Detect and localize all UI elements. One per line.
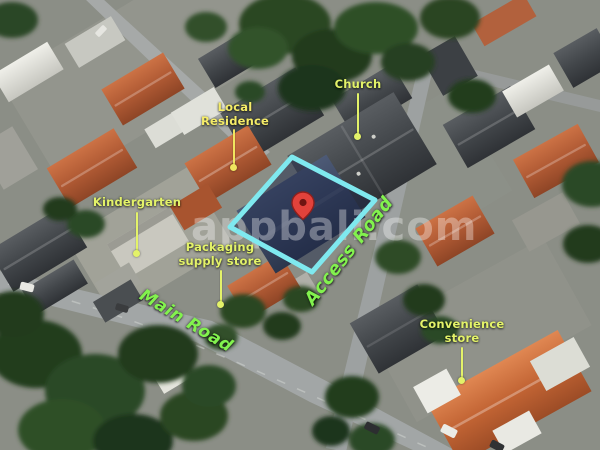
convenience-anchor-dot [458, 377, 465, 384]
label-church: Church [335, 78, 382, 92]
label-church-text: Church [335, 77, 382, 91]
convenience-leader-line [461, 347, 463, 379]
packaging-anchor-dot [217, 301, 224, 308]
church-anchor-dot [354, 133, 361, 140]
annotated-satellite-map: appbali.com Local Residence Church Kinde… [0, 0, 600, 450]
kindergarten-leader-line [136, 212, 138, 252]
label-packaging-line1: Packaging [186, 240, 255, 254]
label-convenience-line2: store [445, 331, 480, 345]
kindergarten-anchor-dot [133, 250, 140, 257]
local-residence-anchor-dot [230, 164, 237, 171]
label-local-residence-line2: Residence [201, 114, 269, 128]
label-local-residence-line1: Local [218, 100, 253, 114]
label-convenience-store: Convenience store [420, 318, 505, 345]
label-convenience-line1: Convenience [420, 317, 505, 331]
label-kindergarten: Kindergarten [93, 196, 181, 210]
church-leader-line [357, 93, 359, 135]
label-packaging-line2: supply store [178, 254, 261, 268]
local-residence-leader-line [233, 129, 235, 166]
label-kindergarten-text: Kindergarten [93, 195, 181, 209]
packaging-leader-line [220, 270, 222, 303]
label-local-residence: Local Residence [201, 101, 269, 128]
label-packaging-supply-store: Packaging supply store [178, 241, 261, 268]
